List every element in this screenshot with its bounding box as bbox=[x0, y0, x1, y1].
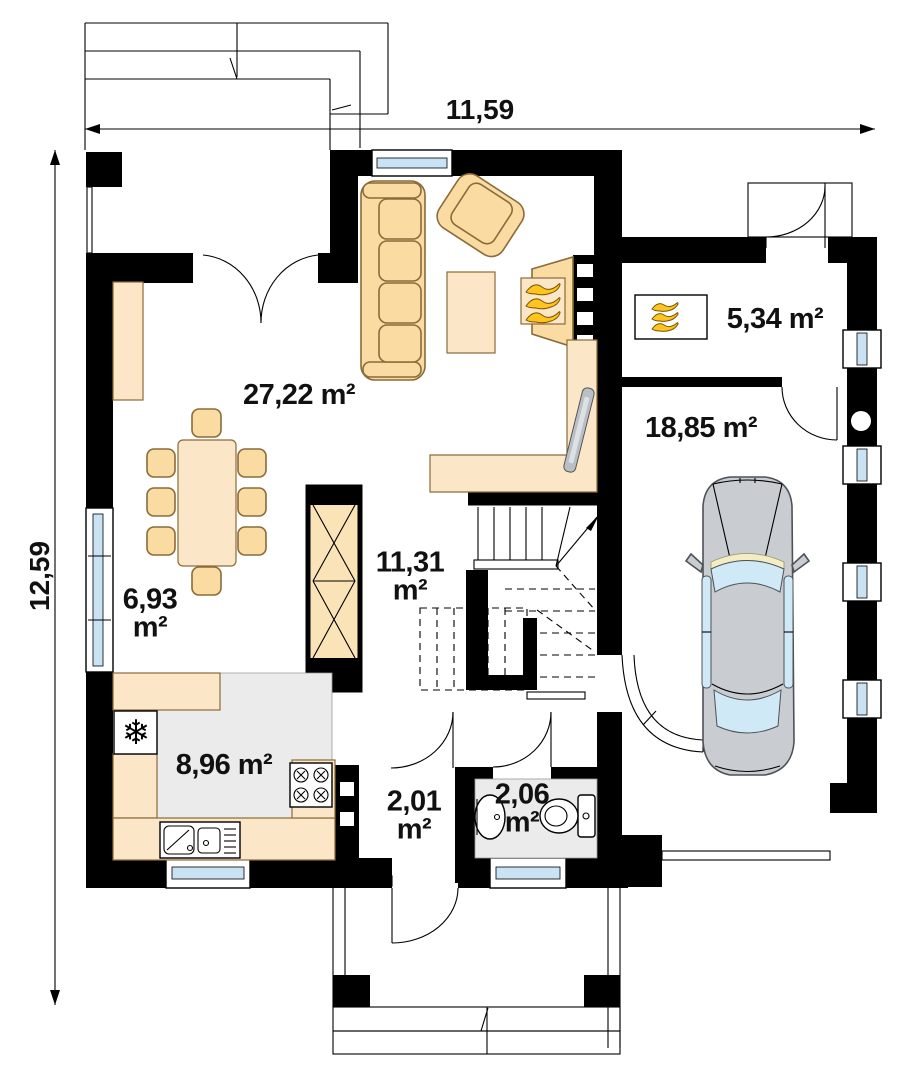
vestibule-door bbox=[391, 712, 453, 768]
arrow-left-icon bbox=[85, 124, 100, 134]
chair bbox=[192, 567, 221, 595]
dining-set bbox=[147, 409, 266, 595]
porch-steps bbox=[333, 1007, 620, 1054]
snowflake-icon: ❄ bbox=[122, 714, 151, 752]
wall-vent bbox=[851, 411, 871, 431]
french-door-terrace bbox=[203, 255, 318, 323]
window-garage-3 bbox=[843, 563, 881, 601]
armchair bbox=[432, 168, 530, 261]
porch bbox=[333, 888, 620, 1054]
arrow-up-icon bbox=[50, 150, 60, 165]
chair bbox=[147, 449, 175, 477]
wc-door bbox=[493, 712, 551, 767]
room-label-wc: 2,06 m² bbox=[495, 781, 549, 836]
chimney-hatch bbox=[573, 255, 600, 348]
stove bbox=[290, 763, 332, 807]
boiler-unit bbox=[635, 295, 707, 339]
kitchen-sink bbox=[160, 822, 240, 858]
room-label-kitchen: 8,96 m² bbox=[176, 752, 272, 780]
floor-plan-drawing: ❄ bbox=[0, 0, 901, 1080]
fireplace bbox=[521, 257, 573, 347]
garage-gate bbox=[662, 851, 830, 860]
garage-passage-curve bbox=[622, 655, 703, 752]
sofa bbox=[361, 181, 425, 380]
sideboard bbox=[113, 282, 143, 400]
kitchen-counter-top bbox=[113, 673, 220, 710]
porch-column bbox=[584, 975, 620, 1007]
room-label-garage: 18,85 m² bbox=[645, 415, 757, 443]
room-label-boiler: 5,34 m² bbox=[727, 306, 823, 334]
entry-door bbox=[368, 876, 458, 943]
window-wc-bottom bbox=[490, 858, 566, 888]
coffee-table bbox=[447, 272, 495, 353]
dining-table bbox=[178, 440, 236, 566]
fridge: ❄ bbox=[114, 711, 157, 754]
room-label-dining: 6,93 m² bbox=[123, 586, 177, 641]
chair bbox=[238, 488, 266, 516]
window-garage-2 bbox=[843, 446, 881, 484]
window-garage-1 bbox=[843, 330, 881, 368]
boiler-garage-door bbox=[782, 387, 837, 440]
room-label-living: 27,22 m² bbox=[243, 382, 355, 410]
wardrobe bbox=[308, 487, 360, 690]
window-left bbox=[86, 508, 113, 672]
chair bbox=[238, 527, 266, 555]
car bbox=[686, 477, 809, 775]
window-garage-4 bbox=[843, 680, 881, 718]
chair bbox=[238, 449, 266, 477]
room-label-vestibule: 2,01 m² bbox=[387, 788, 441, 843]
stairs bbox=[420, 505, 599, 699]
dimension-width-label: 11,59 bbox=[446, 94, 515, 126]
porch-column bbox=[333, 975, 370, 1007]
chair bbox=[147, 488, 175, 516]
floor-plan: ❄ bbox=[0, 0, 901, 1080]
window-living-top bbox=[372, 150, 452, 176]
dimension-height-label: 12,59 bbox=[24, 541, 56, 611]
driveway-edge bbox=[608, 1007, 620, 1048]
kitchen-counter-left bbox=[113, 754, 157, 818]
chair bbox=[192, 409, 221, 437]
chair bbox=[147, 527, 175, 555]
arrow-down-icon bbox=[50, 990, 60, 1005]
arrow-right-icon bbox=[860, 124, 875, 134]
room-label-stairs: 11,31 m² bbox=[376, 549, 444, 604]
window-kitchen-bottom bbox=[166, 858, 250, 888]
